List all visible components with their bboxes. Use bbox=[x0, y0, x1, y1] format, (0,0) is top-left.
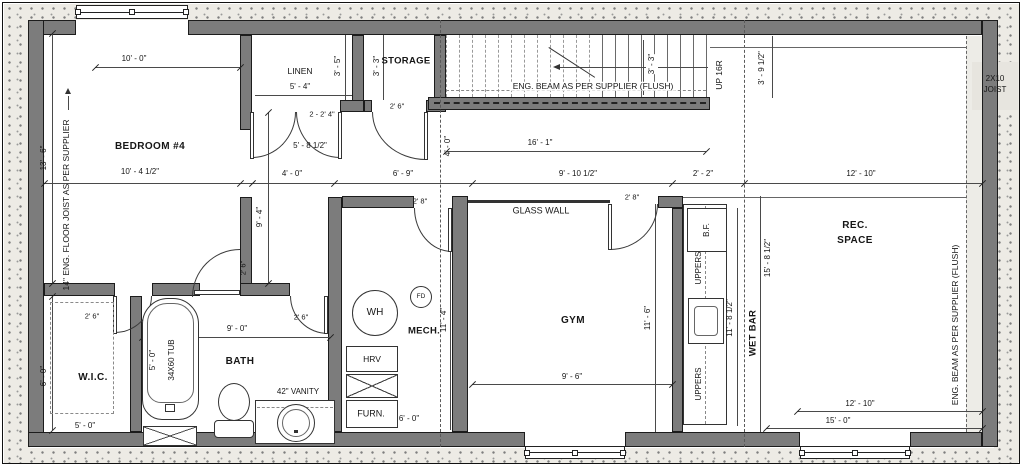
dim-bath-door: 2' 6" bbox=[294, 313, 309, 321]
dimension-line bbox=[383, 35, 384, 100]
dim-rec-width-bottom: 12' - 10" bbox=[845, 400, 874, 408]
bedroom-door-leaf bbox=[194, 290, 240, 295]
tub-label: 34X60 TUB bbox=[168, 339, 176, 380]
window-mullion bbox=[905, 450, 911, 456]
stair-tread bbox=[446, 35, 447, 97]
vanity-drain bbox=[294, 430, 298, 433]
wall bbox=[340, 100, 364, 112]
wic-shelf-dashed bbox=[50, 302, 114, 414]
wall bbox=[625, 432, 800, 447]
dim-stair-offset: 3' - 9 1/2" bbox=[758, 51, 766, 85]
tub-faucet bbox=[165, 404, 175, 412]
glass-wall-line bbox=[468, 200, 610, 203]
dim-hall-double-door: 2 - 2' 4" bbox=[309, 110, 334, 118]
window-mullion bbox=[183, 9, 189, 15]
room-label-storage: STORAGE bbox=[382, 56, 431, 66]
dim-row-9-10: 9' - 10 1/2" bbox=[559, 170, 597, 178]
dim-storage-depth: 3' - 3" bbox=[373, 56, 381, 76]
room-label-rec-line1: REC. bbox=[842, 221, 868, 231]
dimension-line bbox=[737, 208, 738, 426]
window-mullion bbox=[524, 450, 530, 456]
glass-wall-note: GLASS WALL bbox=[513, 207, 570, 216]
dimension-line bbox=[760, 196, 761, 432]
dim-furnace-clear: 6' - 0" bbox=[399, 415, 419, 423]
dimension-line bbox=[766, 428, 982, 429]
dim-gym-width: 9' - 6" bbox=[562, 373, 582, 381]
stair-tread bbox=[485, 35, 486, 97]
dimension-line bbox=[472, 384, 672, 385]
dim-gym-depth: 11' - 6" bbox=[644, 306, 652, 330]
water-heater-label: WH bbox=[367, 308, 384, 318]
dim-row-6-9: 6' - 9" bbox=[393, 170, 413, 178]
dim-tub-length: 5' - 0" bbox=[149, 350, 157, 370]
dimension-line bbox=[710, 47, 966, 48]
joist-2x10-label-line2: JOIST bbox=[984, 86, 1007, 94]
bath-door-leaf bbox=[324, 296, 328, 334]
room-label-gym: GYM bbox=[561, 316, 585, 326]
grid-refline bbox=[744, 20, 745, 447]
window-mullion bbox=[129, 9, 135, 15]
dimension-line bbox=[683, 197, 966, 198]
toilet-tank bbox=[214, 420, 254, 438]
dim-bedroom-depth: 13' - 6" bbox=[40, 146, 48, 171]
dimension-line bbox=[95, 67, 240, 68]
stair-beam-dashed bbox=[434, 102, 706, 104]
basement-floor-plan: BEDROOM #4 LINEN STORAGE W.I.C. BATH MEC… bbox=[0, 0, 1024, 468]
toilet-bowl bbox=[218, 383, 250, 421]
room-label-bath: BATH bbox=[226, 357, 255, 367]
uppers-lower-label: UPPERS bbox=[695, 368, 703, 401]
furnace-label: FURN. bbox=[357, 410, 385, 419]
stair-tread bbox=[498, 35, 499, 97]
room-label-linen: LINEN bbox=[287, 67, 312, 76]
double-door-leaf-right bbox=[338, 112, 342, 159]
dimension-line bbox=[52, 33, 53, 283]
dim-mech-door: 2' 8" bbox=[413, 197, 428, 205]
dim-row-2-2: 2' - 2" bbox=[693, 170, 713, 178]
room-label-rec-line2: SPACE bbox=[837, 236, 873, 246]
dim-rec-total: 15' - 0" bbox=[826, 417, 851, 425]
storage-door-leaf bbox=[424, 112, 428, 160]
dimension-line bbox=[44, 183, 982, 184]
dim-bath-width: 9' - 0" bbox=[227, 325, 247, 333]
dim-wetbar-length: 11' - 8 1/2" bbox=[726, 299, 734, 337]
dim-hall-width: 4' - 0" bbox=[282, 170, 302, 178]
stair-tread bbox=[680, 35, 681, 97]
stair-tread bbox=[472, 35, 473, 97]
stair-direction-label: UP 16R bbox=[715, 60, 724, 90]
dim-stair-width: 3' - 3" bbox=[646, 54, 658, 74]
leader-arrowhead bbox=[65, 88, 71, 94]
wall bbox=[188, 20, 982, 35]
stair-beam-note: ENG. BEAM AS PER SUPPLIER (FLUSH) bbox=[511, 82, 676, 91]
room-label-wic: W.I.C. bbox=[78, 373, 108, 383]
stair-up-arrowhead bbox=[553, 64, 560, 70]
stair-tread bbox=[706, 35, 707, 97]
dim-rec-width-top: 12' - 10" bbox=[846, 170, 875, 178]
wall bbox=[342, 196, 414, 208]
dim-gym-door: 2' 8" bbox=[625, 193, 640, 201]
floor-joist-note: 14" ENG. FLOOR JOIST AS PER SUPPLIER bbox=[62, 119, 71, 290]
bar-fridge-label: B.F. bbox=[703, 223, 711, 237]
wall bbox=[658, 196, 683, 208]
dimension-line bbox=[255, 95, 352, 96]
room-label-mech: MECH. bbox=[408, 326, 440, 336]
wall bbox=[452, 196, 468, 432]
vanity-label: 42" VANITY bbox=[277, 388, 319, 396]
laundry-chase bbox=[143, 426, 197, 446]
hrv-label: HRV bbox=[363, 355, 381, 364]
room-label-wet-bar: WET BAR bbox=[748, 310, 758, 356]
window-mullion bbox=[620, 450, 626, 456]
mech-door-leaf bbox=[448, 208, 452, 252]
window-mullion bbox=[572, 450, 578, 456]
wall bbox=[672, 208, 683, 432]
wall bbox=[364, 100, 372, 112]
dim-landing-width: 4' - 0" bbox=[444, 136, 452, 156]
uppers-upper-label: UPPERS bbox=[695, 252, 703, 285]
dim-hall-length: 9' - 4" bbox=[256, 207, 264, 227]
wall bbox=[910, 432, 982, 447]
dim-linen-depth: 3' - 5" bbox=[334, 56, 342, 76]
dim-linen-width: 5' - 4" bbox=[290, 83, 310, 91]
joist-2x10-label-line1: 2X10 bbox=[986, 75, 1005, 83]
stair-tread bbox=[693, 35, 694, 97]
mech-duct-box bbox=[346, 374, 398, 398]
double-door-leaf-left bbox=[250, 112, 254, 159]
dim-wic-door: 2' 6" bbox=[85, 312, 100, 320]
dim-mech-depth: 11' - 4" bbox=[440, 308, 448, 332]
bar-sink-inner bbox=[694, 306, 718, 336]
dim-bedroom-width: 10' - 0" bbox=[122, 55, 147, 63]
right-beam-note: ENG. BEAM AS PER SUPPLIER (FLUSH) bbox=[951, 245, 960, 406]
dimension-line bbox=[772, 36, 773, 98]
room-label-bedroom4: BEDROOM #4 bbox=[115, 142, 185, 152]
dim-bedroom-door: 2' 6" bbox=[239, 261, 247, 276]
dimension-line bbox=[345, 35, 346, 100]
dim-stair-length: 16' - 1" bbox=[526, 139, 555, 147]
dimension-line bbox=[797, 411, 982, 412]
dimension-line bbox=[68, 96, 69, 110]
stair-tread bbox=[459, 35, 460, 97]
window-mullion bbox=[799, 450, 805, 456]
gym-door-leaf bbox=[608, 204, 612, 250]
window-mullion bbox=[852, 450, 858, 456]
dim-wic-depth: 6' - 0" bbox=[40, 366, 48, 386]
wall bbox=[328, 197, 342, 432]
dim-wetbar-total: 15' - 8 1/2" bbox=[764, 239, 772, 277]
window-mullion bbox=[75, 9, 81, 15]
wall bbox=[240, 197, 252, 296]
floor-drain-label: FD bbox=[417, 294, 426, 301]
dimension-line bbox=[446, 151, 706, 152]
dimension-line bbox=[655, 204, 656, 432]
dim-hall-double-width: 5' - 8 1/2" bbox=[293, 142, 327, 150]
dim-bedroom-width-lower: 10' - 4 1/2" bbox=[121, 168, 159, 176]
dim-wic-width: 5' - 0" bbox=[75, 422, 95, 430]
dim-storage-door: 2' 6" bbox=[390, 102, 405, 110]
